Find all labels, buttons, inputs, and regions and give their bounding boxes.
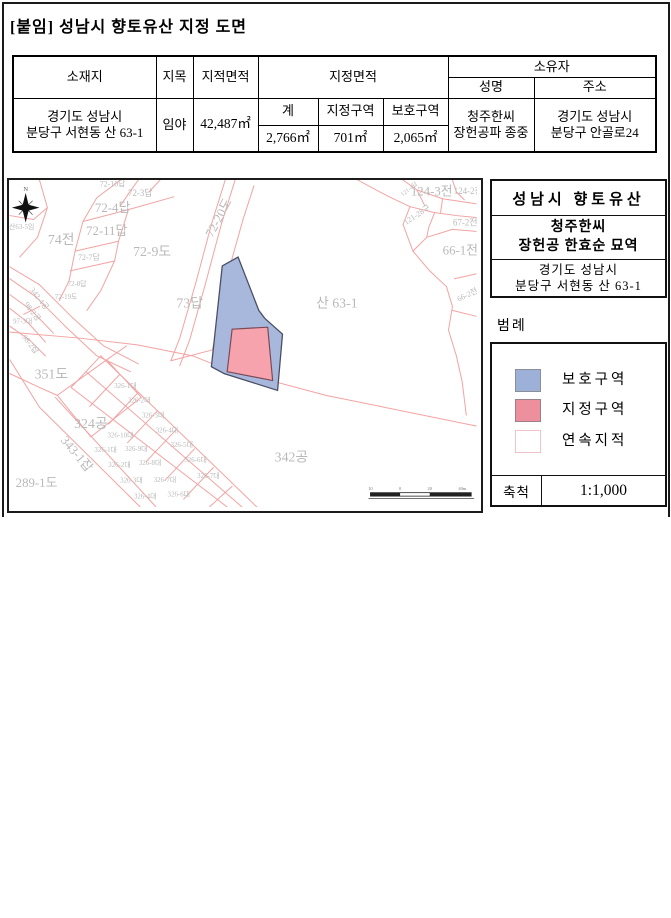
- parcel-label: 343-1잡: [58, 433, 96, 474]
- header-designated-area: 지정면적: [258, 56, 448, 98]
- legend-label-continuous: 연속지적: [562, 430, 662, 453]
- parcel-label: 72-4답: [95, 201, 131, 215]
- heritage-name-line2: 장헌공 한효순 묘역: [492, 238, 665, 257]
- parcel-label: 326-10대: [108, 431, 134, 439]
- parcel-label: 72-10답: [100, 180, 126, 189]
- legend-caption: 범례: [497, 315, 527, 335]
- parcel-label: 74전: [48, 232, 75, 247]
- cell-total-area: 2,766㎡: [258, 125, 318, 152]
- heritage-info-panel: 성남시 향토유산 청주한씨 장헌공 한효순 묘역 경기도 성남시 분당구 서현동…: [490, 179, 667, 298]
- parcel-label: 326-8대: [139, 459, 161, 467]
- parcel-label: 326-4대: [156, 426, 178, 434]
- cadastral-map: N 산63-5임74전72-4답72-11답72-10답72-3답72-7답72…: [7, 178, 483, 513]
- cell-cadastral-area: 42,487㎡: [193, 98, 258, 152]
- scale-value: 1:1,000: [542, 476, 665, 505]
- header-owner-address: 주소: [534, 77, 656, 98]
- parcel-label: 66-1전: [443, 244, 477, 258]
- heritage-address: 경기도 성남시 분당구 서현동 산 63-1: [492, 260, 665, 296]
- location-line1: 경기도 성남시: [14, 109, 156, 125]
- parcel-label: 67-2전: [453, 218, 477, 228]
- compass-n-label: N: [23, 186, 28, 193]
- legend-box: 보호구역 지정구역 연속지적 축척 1:1,000: [490, 342, 667, 507]
- document-page: { "page": { "title": "[붙임] 성남시 향토유산 지정 도…: [0, 0, 671, 918]
- header-land-category: 지목: [156, 56, 193, 98]
- parcel-label: 326-3대: [142, 412, 164, 420]
- owner-address-line1: 경기도 성남시: [535, 109, 656, 125]
- page-title: [붙임] 성남시 향토유산 지정 도면: [10, 13, 247, 37]
- parcel-label: 326-6대: [168, 491, 190, 499]
- parcel-label: 289-1도: [16, 476, 58, 490]
- heritage-address-line2: 분당구 서현동 산 63-1: [492, 278, 665, 294]
- owner-name-line1: 청주한씨: [449, 109, 534, 125]
- scale-row: 축척 1:1,000: [492, 475, 665, 505]
- designated-zone-polygon: [227, 327, 272, 380]
- parcel-label: 326-1대: [94, 446, 116, 454]
- parcel-label: 324공: [74, 416, 107, 431]
- parcel-label: 66-2전: [455, 285, 477, 303]
- cell-land-category: 임야: [156, 98, 193, 152]
- scale-bar-tick-label: 40m: [458, 486, 466, 491]
- heritage-name-line1: 청주한씨: [492, 219, 665, 238]
- parcel-label: 326-3대: [120, 477, 142, 485]
- scale-bar-tick-label: 20: [427, 486, 432, 491]
- subheader-protection-zone: 보호구역: [383, 98, 448, 125]
- legend-swatch-0: [515, 369, 541, 392]
- header-location: 소재지: [13, 56, 156, 98]
- parcel-label: 326-6대: [184, 456, 206, 464]
- parcel-label: 326-2대: [128, 397, 150, 405]
- heritage-panel-title: 성남시 향토유산: [492, 181, 665, 215]
- parcel-label: 326-1대: [114, 382, 136, 390]
- parcel-label: 342공: [275, 449, 308, 464]
- parcel-label: 97-3대: [13, 318, 32, 326]
- map-canvas: N 산63-5임74전72-4답72-11답72-10답72-3답72-7답72…: [9, 180, 477, 507]
- header-owner-name: 성명: [448, 77, 534, 98]
- parcel-label: 326-4대: [134, 493, 156, 501]
- parcel-label: 326-7대: [197, 472, 219, 480]
- parcel-label: 72-11답: [86, 224, 127, 238]
- cell-designated-zone-area: 701㎡: [318, 125, 383, 152]
- parcel-label: 98-2잡: [20, 332, 41, 355]
- subheader-designated-zone: 지정구역: [318, 98, 383, 125]
- location-line2: 분당구 서현동 산 63-1: [14, 125, 156, 141]
- parcel-label: 326-5대: [171, 441, 193, 449]
- parcel-label: 124-2전: [454, 186, 477, 196]
- parcel-label: 73답: [176, 295, 203, 310]
- subheader-total: 계: [258, 98, 318, 125]
- legend-label-protection: 보호구역: [562, 369, 662, 392]
- scale-bar-tick-label: 10: [368, 486, 373, 491]
- parcel-label: 72-3답: [128, 187, 152, 198]
- heritage-name: 청주한씨 장헌공 한효순 묘역: [492, 215, 665, 260]
- cell-protection-zone-area: 2,065㎡: [383, 125, 448, 152]
- legend-label-designated: 지정구역: [562, 399, 662, 422]
- parcel-label: 326-7대: [154, 476, 176, 484]
- header-owner: 소유자: [448, 56, 656, 77]
- parcel-label: 72-8답: [68, 280, 88, 288]
- parcel-label: 72-7답: [78, 252, 100, 262]
- cell-owner-address: 경기도 성남시 분당구 안골로24: [534, 98, 656, 152]
- scale-key: 축척: [492, 476, 542, 505]
- legend-swatch-1: [515, 399, 541, 422]
- scale-bar: 1002040m: [368, 486, 474, 498]
- parcel-label: 72-19도: [55, 293, 77, 301]
- cell-location: 경기도 성남시 분당구 서현동 산 63-1: [13, 98, 156, 152]
- parcel-label: 326-2대: [108, 461, 130, 469]
- legend-swatch-2: [515, 430, 541, 453]
- owner-address-line2: 분당구 안골로24: [535, 125, 656, 141]
- heritage-address-line1: 경기도 성남시: [492, 262, 665, 278]
- parcel-label: 72-9도: [133, 244, 171, 259]
- parcel-label: 326-9대: [125, 445, 147, 453]
- owner-name-line2: 장헌공파 종중: [449, 125, 534, 141]
- scale-bar-tick-label: 0: [399, 486, 402, 491]
- parcel-label: 산 63-1: [316, 295, 358, 310]
- parcel-label: 산63-5임: [9, 222, 34, 231]
- header-cadastral-area: 지적면적: [193, 56, 258, 98]
- parcel-label: 351도: [35, 366, 69, 381]
- land-info-table: 소재지 지목 지적면적 지정면적 소유자 성명 주소 경기도 성남시 분당구 서…: [12, 55, 657, 153]
- cell-owner-name: 청주한씨 장헌공파 종중: [448, 98, 534, 152]
